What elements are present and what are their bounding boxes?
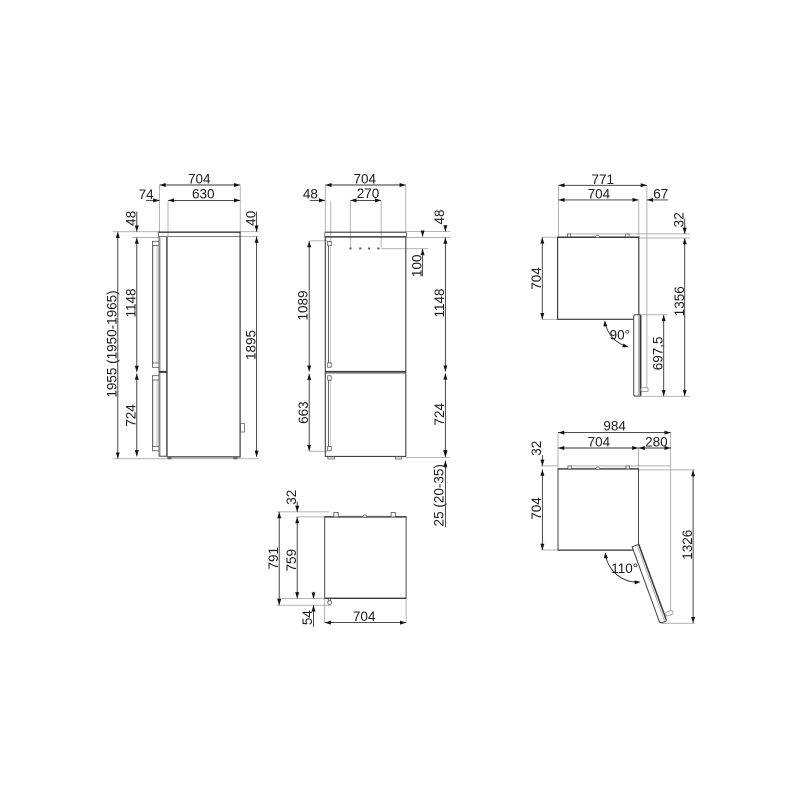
- svg-text:771: 771: [592, 172, 615, 187]
- svg-text:1148: 1148: [124, 288, 139, 317]
- svg-text:48: 48: [432, 209, 447, 224]
- svg-text:791: 791: [266, 547, 281, 570]
- svg-text:704: 704: [529, 267, 544, 290]
- svg-text:704: 704: [354, 172, 377, 187]
- svg-text:704: 704: [353, 609, 376, 624]
- svg-text:1955 (1950-1965): 1955 (1950-1965): [104, 290, 119, 397]
- svg-text:32: 32: [671, 212, 686, 227]
- svg-text:984: 984: [603, 418, 626, 433]
- svg-text:724: 724: [124, 404, 139, 427]
- svg-text:90°: 90°: [610, 327, 630, 342]
- svg-text:32: 32: [529, 441, 544, 456]
- svg-text:724: 724: [432, 403, 447, 426]
- svg-text:1895: 1895: [243, 330, 258, 360]
- svg-text:48: 48: [303, 186, 318, 201]
- svg-text:1356: 1356: [672, 286, 687, 316]
- svg-text:663: 663: [296, 401, 311, 424]
- svg-text:280: 280: [645, 435, 668, 450]
- svg-text:704: 704: [588, 435, 611, 450]
- svg-text:697,5: 697,5: [650, 337, 665, 371]
- svg-text:1148: 1148: [432, 288, 447, 317]
- svg-text:67: 67: [653, 187, 668, 202]
- svg-text:32: 32: [284, 490, 299, 505]
- svg-text:48: 48: [124, 211, 139, 226]
- svg-text:704: 704: [529, 497, 544, 520]
- svg-text:630: 630: [192, 186, 215, 201]
- svg-text:270: 270: [357, 186, 380, 201]
- svg-text:1326: 1326: [680, 530, 695, 560]
- svg-text:74: 74: [139, 187, 155, 202]
- svg-text:25 (20-35): 25 (20-35): [432, 464, 447, 526]
- svg-text:100: 100: [410, 255, 425, 278]
- svg-text:1089: 1089: [296, 290, 311, 320]
- svg-text:110°: 110°: [611, 561, 638, 576]
- svg-text:704: 704: [588, 187, 611, 202]
- svg-text:40: 40: [243, 211, 258, 226]
- svg-text:54: 54: [300, 610, 315, 626]
- svg-text:704: 704: [188, 172, 211, 187]
- svg-text:759: 759: [284, 549, 299, 572]
